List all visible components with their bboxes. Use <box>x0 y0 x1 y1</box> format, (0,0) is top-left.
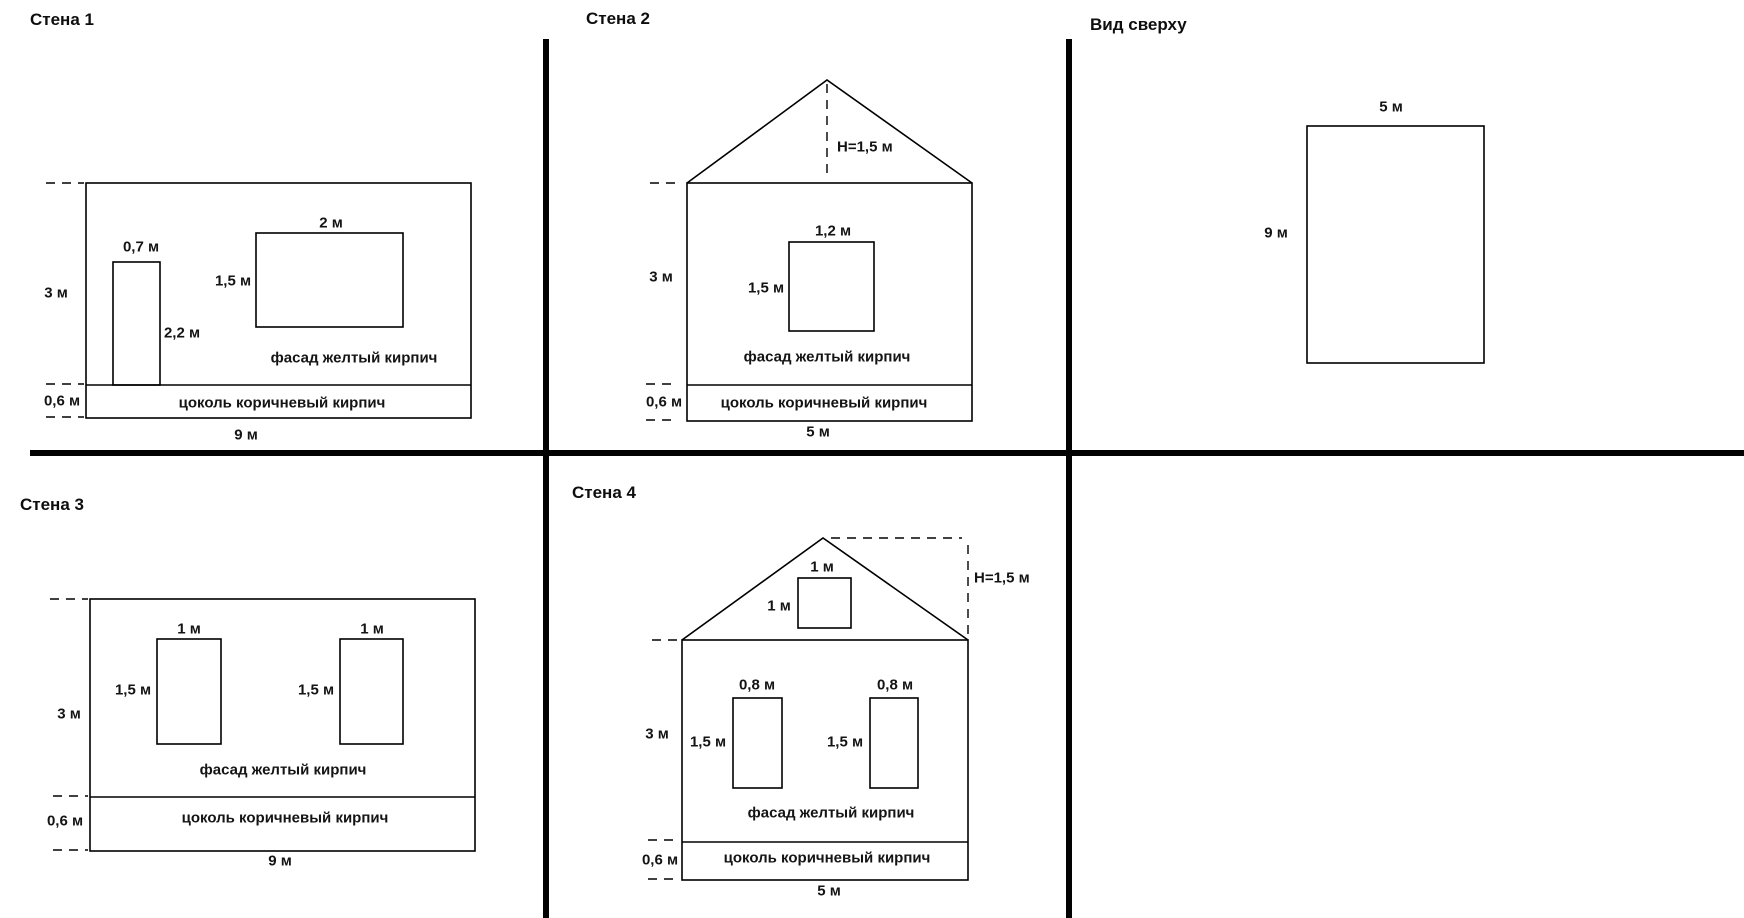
plinth-height-label: 0,6 м <box>44 393 80 410</box>
window-width-label: 2 м <box>319 215 343 232</box>
wall-1-title: Стена 1 <box>30 11 94 30</box>
door <box>113 262 160 385</box>
wall-height-label: 3 м <box>44 285 68 302</box>
wall-height-label: 3 м <box>649 269 673 286</box>
house-elevations-sheet: 0,7 м2 м1,5 м2,2 м3 мфасад желтый кирпич… <box>0 0 1744 918</box>
top-view-plan: 5 м9 м <box>1264 99 1484 364</box>
facade-material-label: фасад желтый кирпич <box>748 805 915 822</box>
window-right-height-label: 1,5 м <box>827 734 863 751</box>
window-right <box>870 698 918 788</box>
plinth-height-label: 0,6 м <box>646 394 682 411</box>
wall-3-elevation: 1 м1 м1,5 м1,5 м3 мфасад желтый кирпич0,… <box>47 599 475 870</box>
window-right <box>340 639 403 744</box>
ridge-height-label: H=1,5 м <box>974 570 1030 587</box>
window-left-height-label: 1,5 м <box>690 734 726 751</box>
gable-window <box>798 578 851 628</box>
gable-window-height-label: 1 м <box>767 598 791 615</box>
window-height-label: 1,5 м <box>748 280 784 297</box>
window-left-width-label: 0,8 м <box>739 677 775 694</box>
window <box>256 233 403 327</box>
wall-width-label: 9 м <box>234 427 258 444</box>
window <box>789 242 874 331</box>
plinth-height-label: 0,6 м <box>47 813 83 830</box>
wall-width-label: 9 м <box>268 853 292 870</box>
window-left-width-label: 1 м <box>177 621 201 638</box>
plinth-material-label: цоколь коричневый кирпич <box>179 395 386 412</box>
facade-material-label: фасад желтый кирпич <box>200 762 367 779</box>
window-left-height-label: 1,5 м <box>115 682 151 699</box>
door-height-label: 2,2 м <box>164 325 200 342</box>
plan-length-label: 9 м <box>1264 225 1288 242</box>
window-left <box>733 698 782 788</box>
window-width-label: 1,2 м <box>815 223 851 240</box>
window-left <box>157 639 221 744</box>
window-right-height-label: 1,5 м <box>298 682 334 699</box>
roof-outline <box>682 538 968 640</box>
top-view-title: Вид сверху <box>1090 16 1187 35</box>
plinth-material-label: цоколь коричневый кирпич <box>182 810 389 827</box>
ridge-height-label: H=1,5 м <box>837 139 893 156</box>
wall-height-label: 3 м <box>645 726 669 743</box>
wall-4-elevation: H=1,5 м1 м1 м0,8 м0,8 м1,5 м1,5 м3 мфаса… <box>642 538 1030 900</box>
wall-width-label: 5 м <box>806 424 830 441</box>
wall-2-title: Стена 2 <box>586 10 650 29</box>
plinth-material-label: цоколь коричневый кирпич <box>724 850 931 867</box>
gable-window-width-label: 1 м <box>810 559 834 576</box>
wall-outline <box>86 183 471 418</box>
wall-4-title: Стена 4 <box>572 484 636 503</box>
facade-material-label: фасад желтый кирпич <box>744 349 911 366</box>
plan-width-label: 5 м <box>1379 99 1403 116</box>
window-height-label: 1,5 м <box>215 273 251 290</box>
wall-3-title: Стена 3 <box>20 496 84 515</box>
wall-outline <box>682 640 968 880</box>
wall-height-label: 3 м <box>57 706 81 723</box>
roof-outline <box>687 80 972 183</box>
window-right-width-label: 1 м <box>360 621 384 638</box>
facade-material-label: фасад желтый кирпич <box>271 350 438 367</box>
plan-outline <box>1307 126 1484 363</box>
plinth-height-label: 0,6 м <box>642 852 678 869</box>
window-right-width-label: 0,8 м <box>877 677 913 694</box>
wall-width-label: 5 м <box>817 883 841 900</box>
wall-2-elevation: H=1,5 м1,2 м1,5 м3 мфасад желтый кирпич0… <box>646 80 972 441</box>
elevation-drawings-svg: 0,7 м2 м1,5 м2,2 м3 мфасад желтый кирпич… <box>0 0 1744 918</box>
door-width-label: 0,7 м <box>123 239 159 256</box>
plinth-material-label: цоколь коричневый кирпич <box>721 395 928 412</box>
wall-1-elevation: 0,7 м2 м1,5 м2,2 м3 мфасад желтый кирпич… <box>44 183 471 444</box>
